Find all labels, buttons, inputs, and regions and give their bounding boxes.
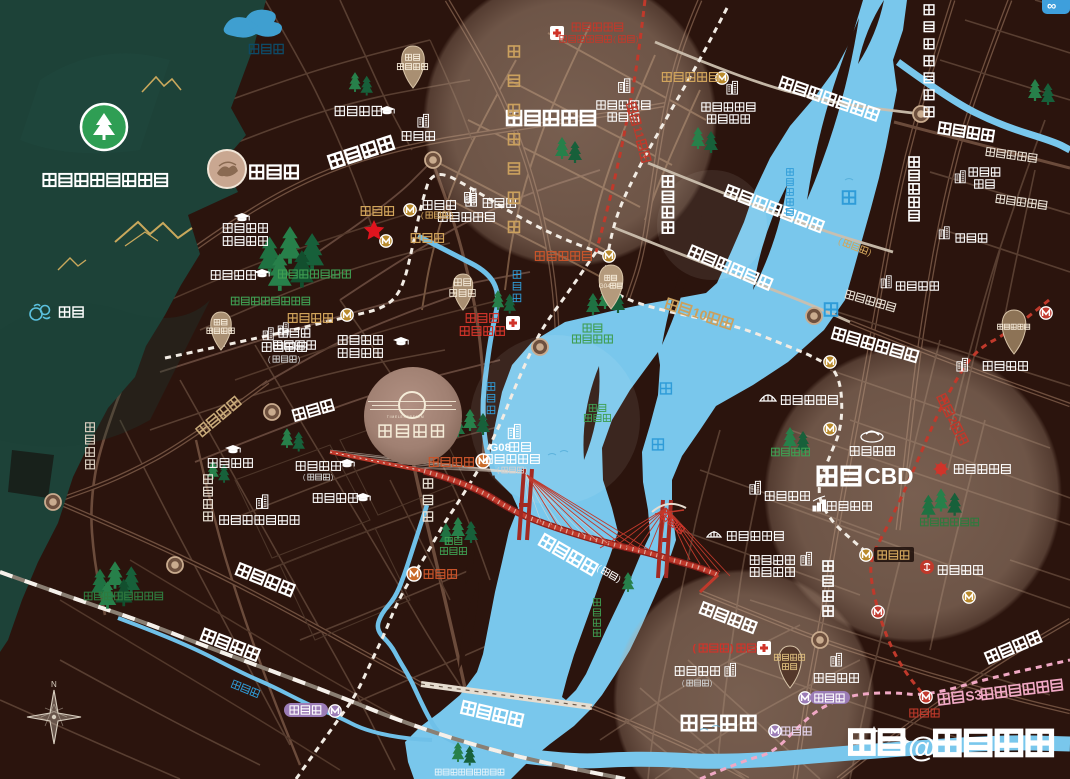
svg-text:CBD: CBD	[864, 463, 913, 489]
svg-text:G04: G04	[599, 283, 612, 290]
svg-text:(: (	[268, 355, 271, 364]
svg-text:T I M E L E S S R E A L M: T I M E L E S S R E A L M	[387, 415, 424, 419]
svg-text:): )	[451, 211, 454, 220]
svg-text:): )	[636, 34, 639, 44]
svg-text:N: N	[51, 680, 57, 689]
svg-text:): )	[730, 644, 733, 655]
svg-text:G08: G08	[490, 442, 511, 454]
svg-text:@: @	[908, 732, 936, 764]
svg-text:(: (	[613, 34, 616, 44]
svg-text:∞: ∞	[1047, 0, 1056, 13]
svg-text:): )	[298, 355, 301, 364]
svg-text:(: (	[693, 644, 697, 655]
svg-text:(: (	[421, 211, 424, 220]
